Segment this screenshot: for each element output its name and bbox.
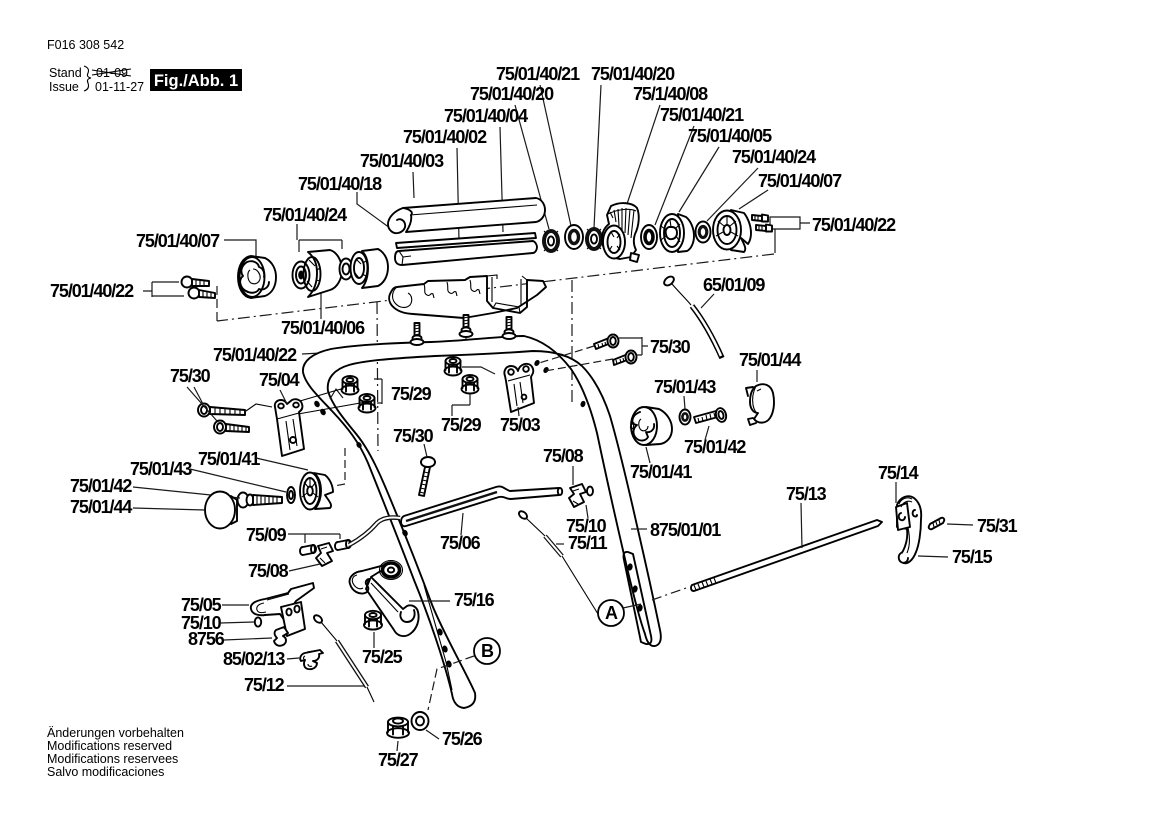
svg-text:A: A bbox=[605, 603, 618, 623]
svg-text:75/1/40/08: 75/1/40/08 bbox=[633, 84, 708, 104]
svg-text:75/25: 75/25 bbox=[362, 647, 403, 667]
svg-text:75/01/40/22: 75/01/40/22 bbox=[812, 215, 896, 235]
svg-text:Modifications reserved: Modifications reserved bbox=[47, 739, 172, 753]
svg-text:75/15: 75/15 bbox=[952, 547, 993, 567]
svg-text:75/13: 75/13 bbox=[786, 484, 827, 504]
svg-text:75/01/40/22: 75/01/40/22 bbox=[50, 281, 134, 301]
svg-text:Salvo modificaciones: Salvo modificaciones bbox=[47, 765, 164, 779]
svg-text:75/01/41: 75/01/41 bbox=[630, 462, 692, 482]
svg-text:75/01/40/24: 75/01/40/24 bbox=[732, 147, 816, 167]
svg-text:75/01/40/02: 75/01/40/02 bbox=[403, 127, 487, 147]
svg-text:85/02/13: 85/02/13 bbox=[223, 649, 285, 669]
svg-text:75/01/40/06: 75/01/40/06 bbox=[281, 318, 365, 338]
svg-text:75/08: 75/08 bbox=[248, 561, 289, 581]
svg-text:75/01/40/07: 75/01/40/07 bbox=[758, 171, 842, 191]
svg-text:75/29: 75/29 bbox=[441, 415, 482, 435]
svg-text:75/16: 75/16 bbox=[454, 590, 495, 610]
svg-text:01-11-27: 01-11-27 bbox=[95, 80, 144, 94]
svg-text:75/01/40/20: 75/01/40/20 bbox=[591, 64, 675, 84]
svg-text:75/05: 75/05 bbox=[181, 595, 222, 615]
svg-text:75/29: 75/29 bbox=[391, 384, 432, 404]
svg-text:75/01/40/22: 75/01/40/22 bbox=[213, 345, 297, 365]
svg-text:75/04: 75/04 bbox=[259, 370, 300, 390]
svg-text:75/26: 75/26 bbox=[442, 729, 483, 749]
svg-text:75/11: 75/11 bbox=[568, 533, 608, 553]
svg-text:Fig./Abb. 1: Fig./Abb. 1 bbox=[154, 72, 238, 90]
svg-text:75/14: 75/14 bbox=[878, 463, 919, 483]
svg-text:75/08: 75/08 bbox=[543, 446, 584, 466]
svg-text:75/01/40/20: 75/01/40/20 bbox=[470, 84, 554, 104]
svg-text:75/30: 75/30 bbox=[393, 426, 434, 446]
svg-text:75/01/40/04: 75/01/40/04 bbox=[444, 106, 528, 126]
svg-text:75/01/43: 75/01/43 bbox=[130, 459, 192, 479]
svg-text:65/01/09: 65/01/09 bbox=[703, 275, 765, 295]
svg-text:75/30: 75/30 bbox=[170, 366, 211, 386]
svg-text:Änderungen vorbehalten: Änderungen vorbehalten bbox=[47, 726, 184, 740]
svg-text:Modifications reservees: Modifications reservees bbox=[47, 752, 178, 766]
svg-text:B: B bbox=[481, 641, 494, 661]
svg-text:75/30: 75/30 bbox=[650, 337, 691, 357]
svg-text:75/01/40/07: 75/01/40/07 bbox=[136, 231, 220, 251]
svg-text:75/01/40/24: 75/01/40/24 bbox=[263, 205, 347, 225]
svg-text:75/01/40/18: 75/01/40/18 bbox=[298, 174, 382, 194]
svg-text:8756: 8756 bbox=[188, 629, 225, 649]
svg-text:75/01/40/03: 75/01/40/03 bbox=[360, 151, 444, 171]
svg-text:75/01/44: 75/01/44 bbox=[739, 350, 801, 370]
svg-text:75/01/42: 75/01/42 bbox=[70, 476, 132, 496]
svg-text:75/09: 75/09 bbox=[246, 525, 287, 545]
svg-text:75/01/43: 75/01/43 bbox=[654, 377, 716, 397]
svg-text:75/06: 75/06 bbox=[440, 533, 481, 553]
svg-text:Stand: Stand bbox=[49, 66, 82, 80]
svg-text:75/01/44: 75/01/44 bbox=[70, 497, 132, 517]
svg-text:75/03: 75/03 bbox=[500, 415, 541, 435]
svg-text:75/31: 75/31 bbox=[977, 516, 1018, 536]
svg-text:Issue: Issue bbox=[49, 80, 79, 94]
svg-text:75/01/40/21: 75/01/40/21 bbox=[660, 105, 744, 125]
svg-text:75/27: 75/27 bbox=[378, 750, 419, 770]
svg-text:875/01/01: 875/01/01 bbox=[650, 520, 721, 540]
svg-text:75/01/40/05: 75/01/40/05 bbox=[688, 126, 772, 146]
svg-text:F016 308 542: F016 308 542 bbox=[47, 38, 124, 52]
svg-text:75/01/42: 75/01/42 bbox=[684, 437, 746, 457]
svg-text:75/12: 75/12 bbox=[244, 675, 285, 695]
svg-text:75/01/40/21: 75/01/40/21 bbox=[496, 64, 580, 84]
svg-text:75/01/41: 75/01/41 bbox=[198, 449, 260, 469]
